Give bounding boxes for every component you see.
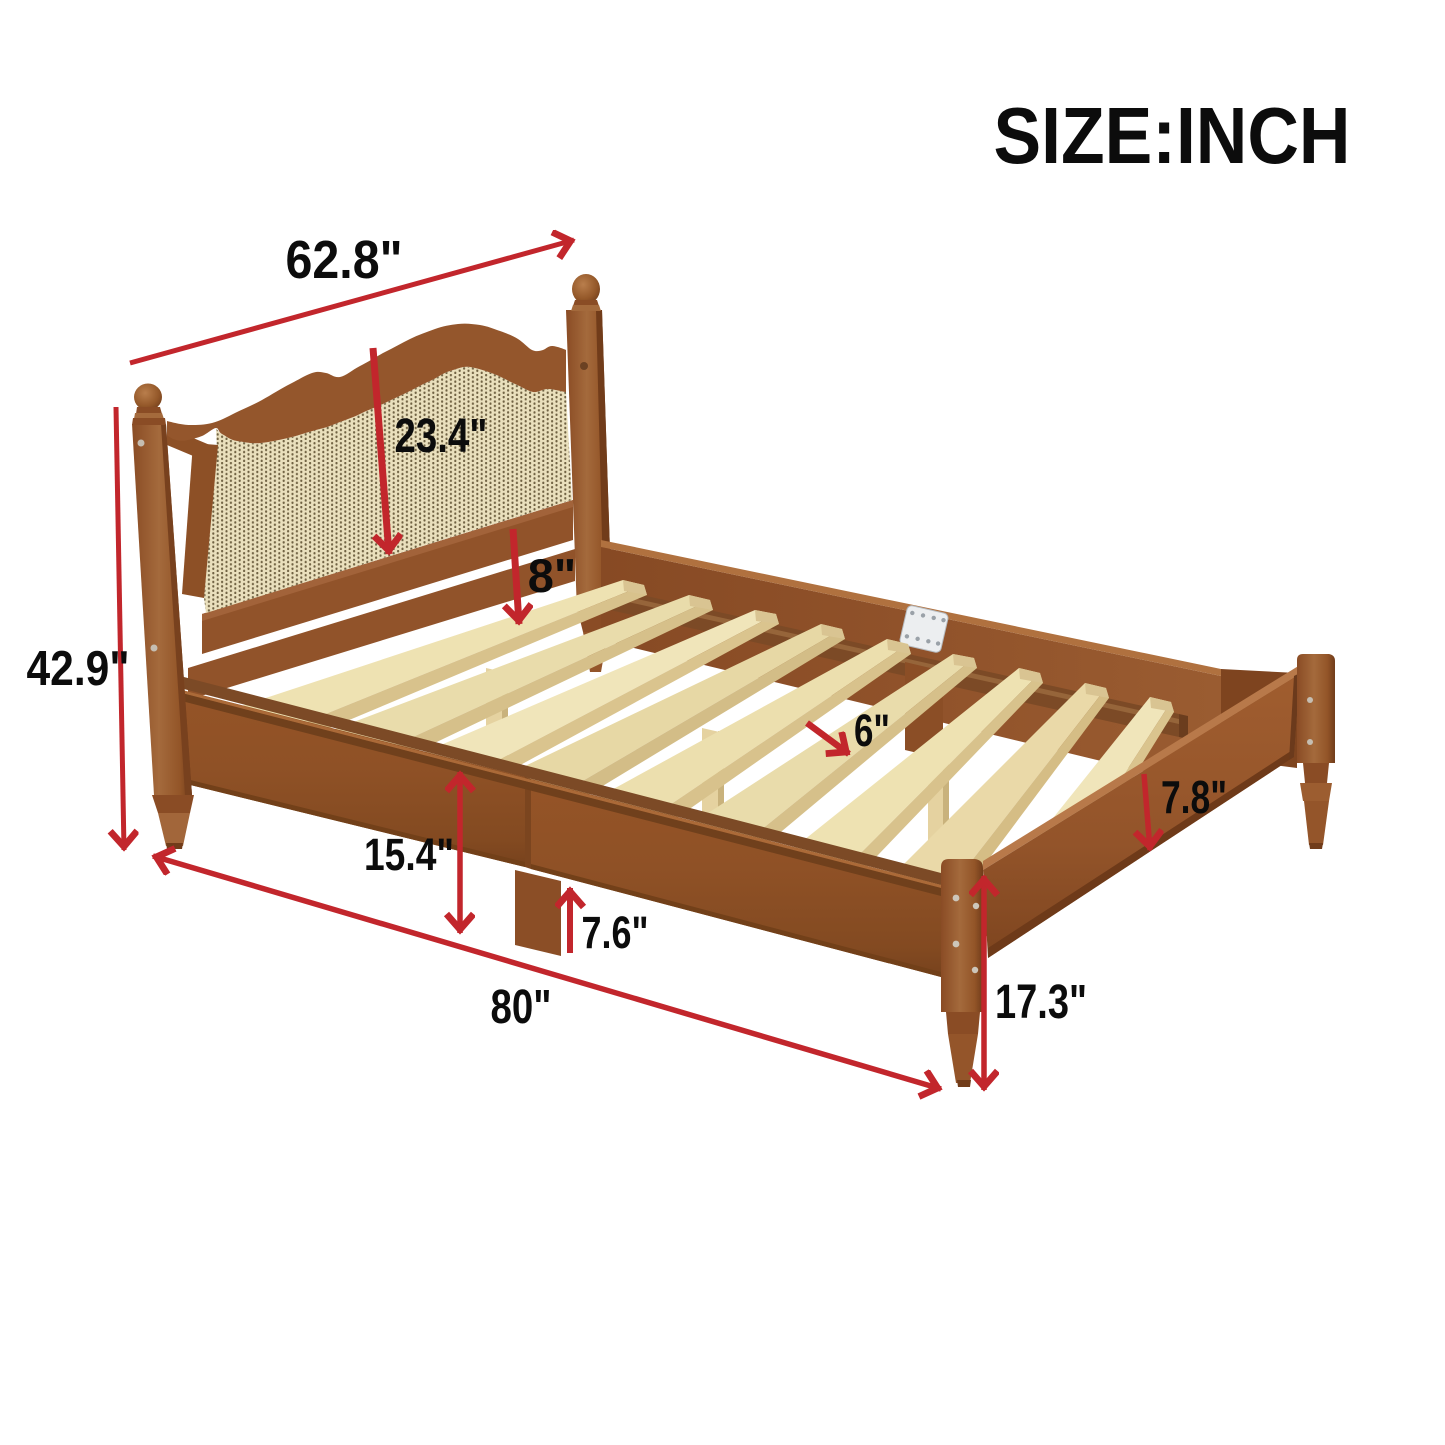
- svg-text:7.6": 7.6": [582, 907, 649, 958]
- svg-text:17.3": 17.3": [995, 976, 1087, 1029]
- svg-text:15.4": 15.4": [364, 829, 454, 880]
- svg-text:80": 80": [491, 981, 552, 1034]
- svg-text:23.4": 23.4": [395, 410, 488, 463]
- svg-text:7.8": 7.8": [1161, 771, 1227, 823]
- svg-text:8": 8": [528, 549, 576, 602]
- svg-text:SIZE:INCH: SIZE:INCH: [994, 91, 1351, 180]
- svg-text:62.8": 62.8": [286, 230, 403, 290]
- svg-text:6": 6": [854, 705, 890, 756]
- svg-text:42.9": 42.9": [27, 642, 130, 696]
